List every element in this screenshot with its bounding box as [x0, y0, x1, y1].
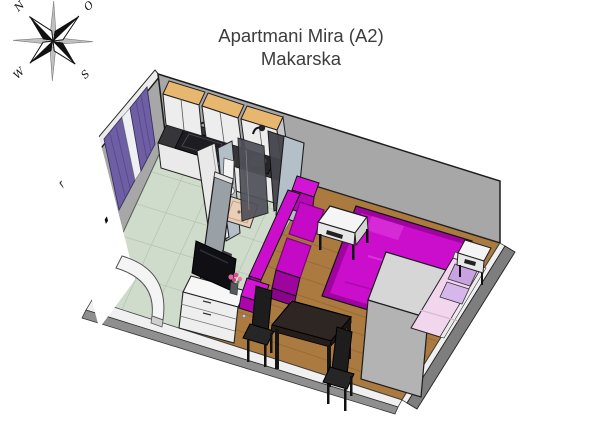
compass-west-label: W [11, 65, 28, 82]
compass-south-label: S [79, 68, 93, 82]
page-title: Apartmani Mira (A2) Makarska [218, 25, 384, 69]
floorplan-page: N O S W Apartmani Mira (A2) Makarska [0, 0, 600, 448]
shower-drain [237, 210, 240, 213]
door-glass-squares [86, 192, 110, 264]
title-line-1: Apartmani Mira (A2) [218, 25, 384, 46]
compass-rose: N O S W [0, 0, 129, 116]
vase [230, 282, 238, 295]
floorplan-image: N O S W Apartmani Mira (A2) Makarska [0, 0, 600, 448]
title-line-2: Makarska [261, 48, 342, 69]
shower-glass-panel [238, 138, 268, 221]
compass-north-label: N [11, 0, 27, 15]
compass-east-label: O [82, 0, 97, 14]
